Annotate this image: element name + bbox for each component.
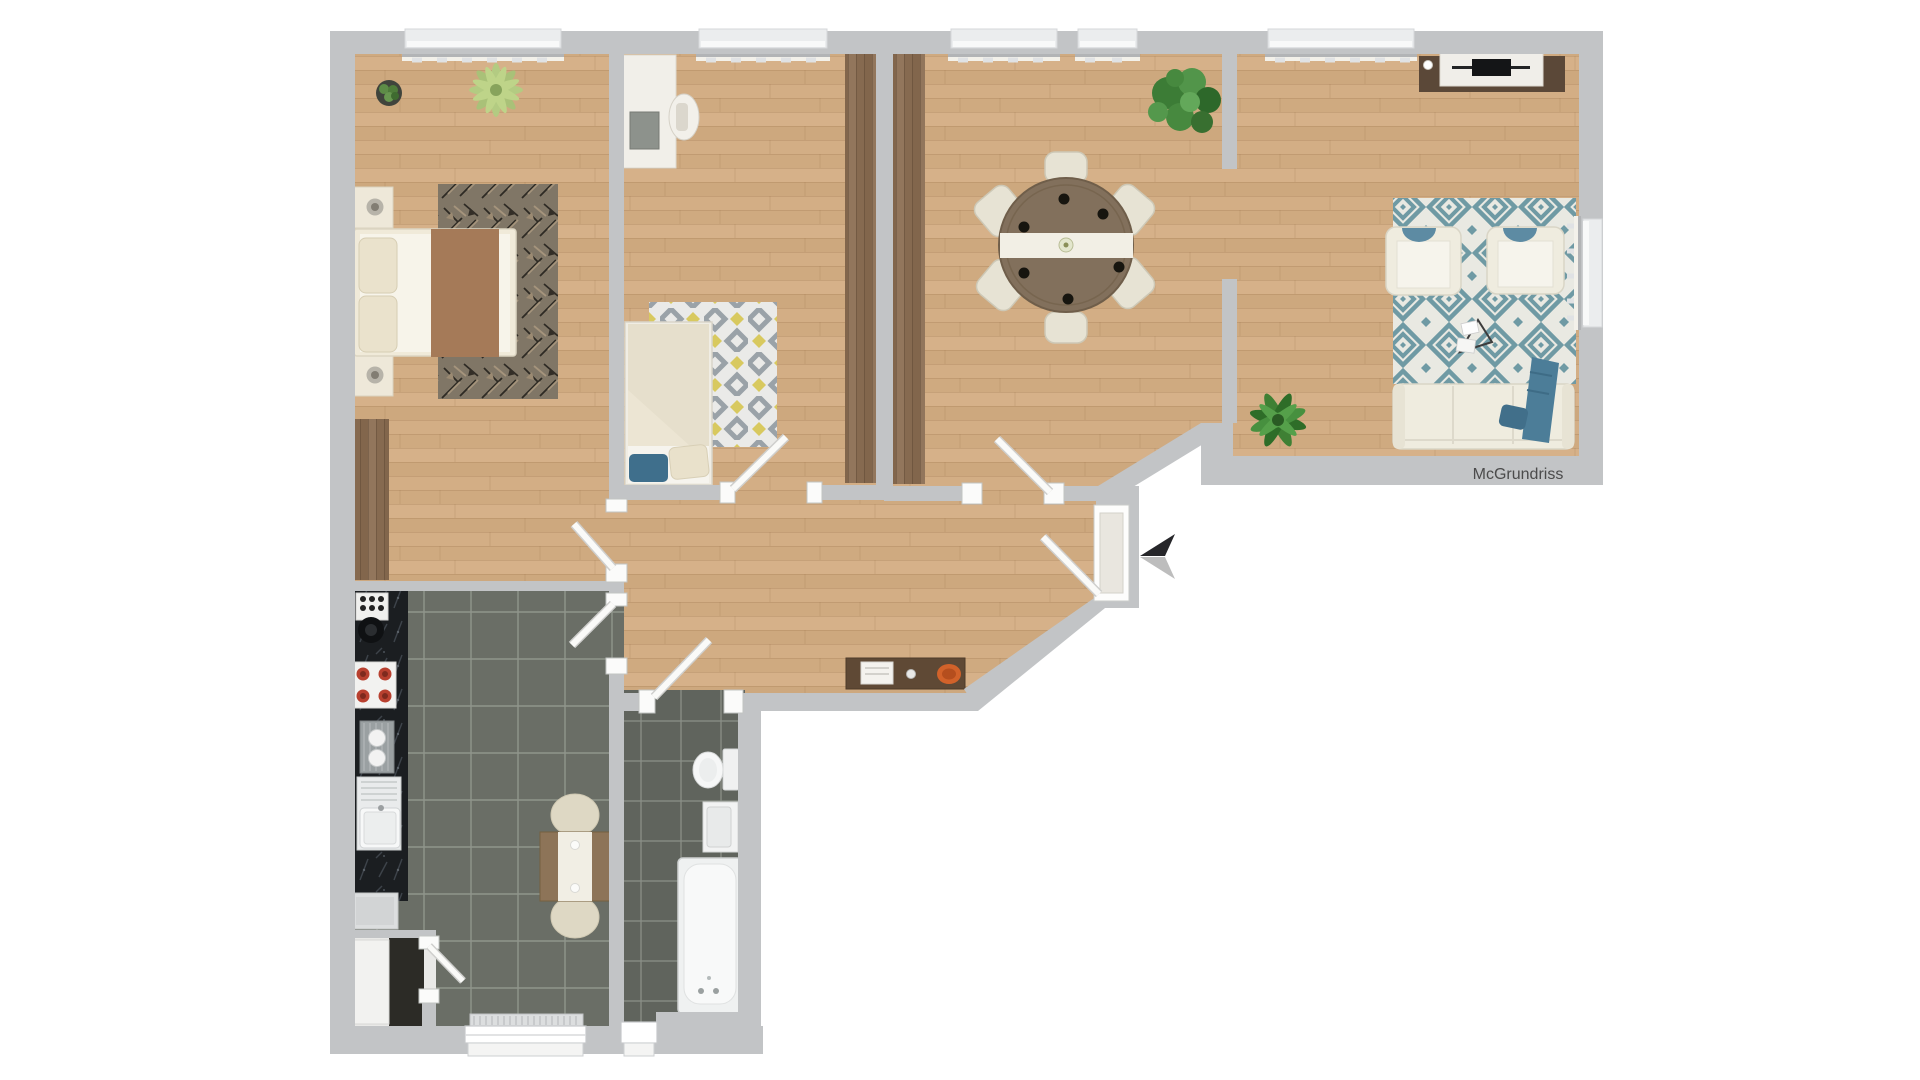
svg-text:McGrundriss: McGrundriss xyxy=(1473,466,1564,483)
